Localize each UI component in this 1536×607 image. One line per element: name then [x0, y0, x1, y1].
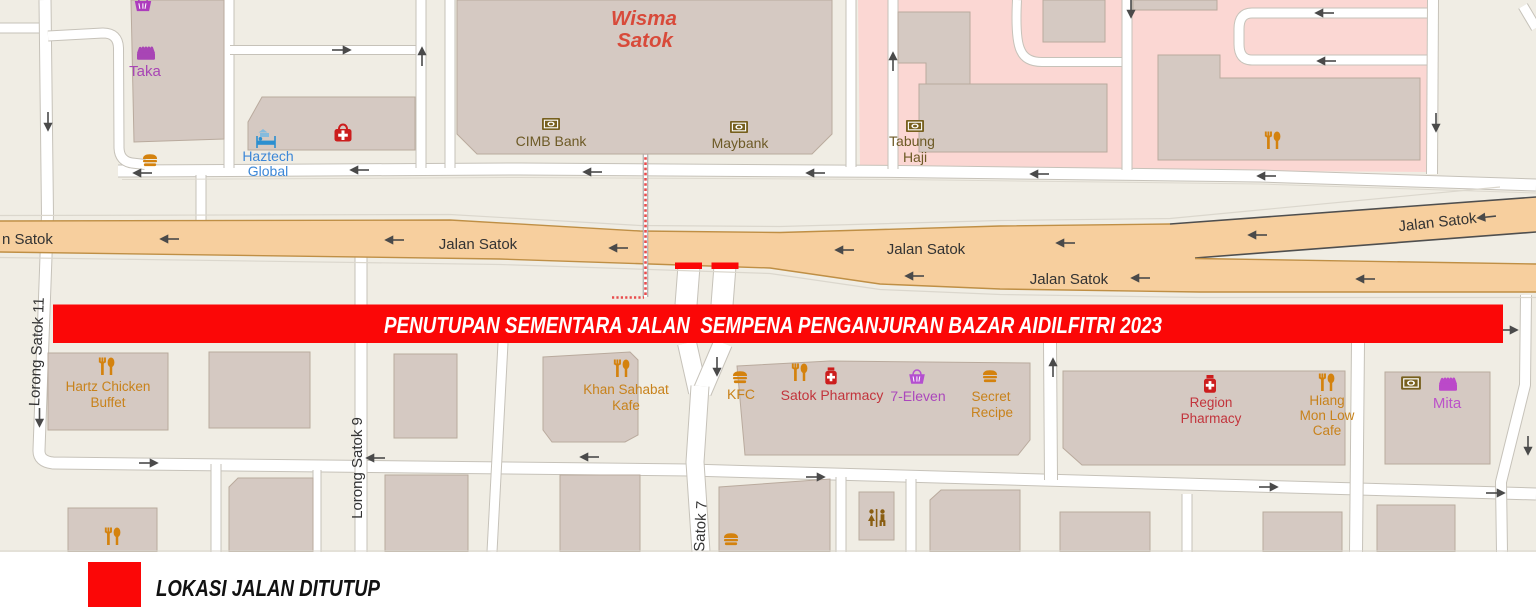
svg-text:Satok: Satok	[617, 29, 674, 52]
svg-text:Mita: Mita	[1433, 395, 1462, 412]
svg-text:Pharmacy: Pharmacy	[1181, 411, 1242, 426]
svg-text:Jalan Satok: Jalan Satok	[887, 241, 966, 258]
svg-text:Kafe: Kafe	[612, 398, 640, 413]
svg-text:Khan Sahabat: Khan Sahabat	[583, 382, 669, 397]
svg-text:LOKASI JALAN DITUTUP: LOKASI JALAN DITUTUP	[156, 575, 381, 601]
svg-text:Jalan Satok: Jalan Satok	[1030, 271, 1109, 288]
svg-text:Secret: Secret	[971, 389, 1010, 404]
svg-text:Recipe: Recipe	[971, 405, 1013, 420]
svg-text:CIMB Bank: CIMB Bank	[516, 133, 588, 149]
svg-text:Haji: Haji	[903, 149, 927, 165]
svg-text:Maybank: Maybank	[712, 135, 770, 151]
svg-text:Jalan Satok: Jalan Satok	[439, 236, 518, 253]
svg-text:Global: Global	[248, 163, 288, 179]
svg-text:Lorong Satok 9: Lorong Satok 9	[349, 417, 366, 519]
svg-text:Region: Region	[1190, 395, 1233, 410]
svg-text:Haztech: Haztech	[242, 148, 293, 164]
svg-text:Satok Pharmacy: Satok Pharmacy	[781, 387, 884, 403]
svg-text:7-Eleven: 7-Eleven	[890, 388, 945, 404]
svg-text:Mon Low: Mon Low	[1300, 408, 1355, 423]
svg-text:Hartz Chicken: Hartz Chicken	[66, 379, 151, 394]
svg-text:Buffet: Buffet	[90, 395, 125, 410]
svg-text:Wisma: Wisma	[611, 7, 677, 30]
svg-text:Hiang: Hiang	[1309, 393, 1344, 408]
svg-text:KFC: KFC	[727, 386, 755, 402]
svg-text:Taka: Taka	[129, 63, 161, 80]
svg-text:Tabung: Tabung	[889, 133, 935, 149]
svg-text:Cafe: Cafe	[1313, 423, 1342, 438]
svg-text:n Satok: n Satok	[2, 231, 53, 248]
svg-text:PENUTUPAN SEMENTARA JALAN SEM: PENUTUPAN SEMENTARA JALAN SEMPENA PENGAN…	[384, 312, 1162, 338]
